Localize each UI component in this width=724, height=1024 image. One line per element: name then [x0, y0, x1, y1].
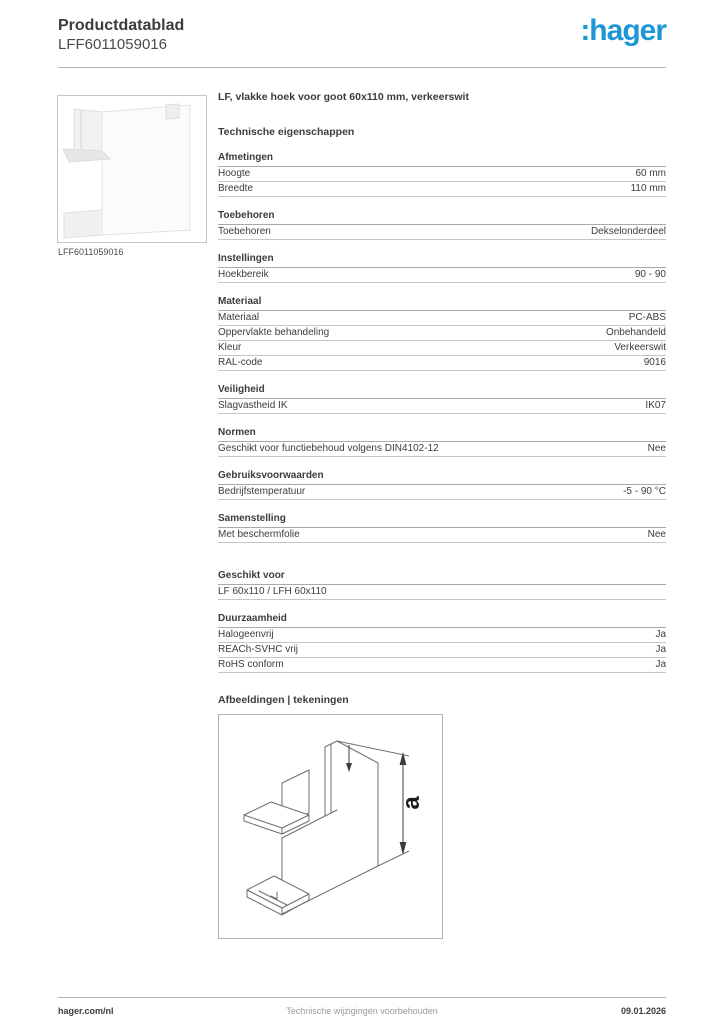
- spec-row: Materiaal PC-ABS: [218, 311, 666, 326]
- drawings-heading: Afbeeldingen | tekeningen: [218, 694, 666, 706]
- spec-row-label: Halogeenvrij: [218, 630, 274, 640]
- main-content: LF, vlakke hoek voor goot 60x110 mm, ver…: [218, 91, 666, 939]
- product-image: [57, 95, 207, 243]
- spec-row: Bedrijfstemperatuur -5 - 90 °C: [218, 485, 666, 500]
- isometric-drawing: a: [219, 715, 442, 938]
- spec-row: Kleur Verkeerswit: [218, 341, 666, 356]
- datasheet-page: Productdatablad LFF6011059016 :hager LFF…: [0, 0, 724, 1024]
- spec-section-title: Gebruiksvoorwaarden: [218, 470, 666, 485]
- header-divider: [58, 67, 666, 68]
- spec-row-value: Nee: [648, 444, 666, 454]
- spec-section: Gebruiksvoorwaarden Bedrijfstemperatuur …: [218, 470, 666, 500]
- spec-row-value: Nee: [648, 530, 666, 540]
- spec-row: Halogeenvrij Ja: [218, 628, 666, 643]
- page-footer: hager.com/nl Technische wijzigingen voor…: [58, 1006, 666, 1016]
- spec-row-label: LF 60x110 / LFH 60x110: [218, 587, 327, 597]
- spec-row-value: 9016: [644, 358, 666, 368]
- spec-row-value: Ja: [655, 660, 666, 670]
- spec-row-value: Ja: [655, 645, 666, 655]
- footer-divider: [58, 997, 666, 998]
- footer-disclaimer: Technische wijzigingen voorbehouden: [58, 1006, 666, 1016]
- spec-section: Duurzaamheid Halogeenvrij Ja REACh-SVHC …: [218, 613, 666, 673]
- spec-row-value: 60 mm: [635, 169, 666, 179]
- spec-row-label: Bedrijfstemperatuur: [218, 487, 305, 497]
- spec-section: Veiligheid Slagvastheid IK IK07: [218, 384, 666, 414]
- spec-row-label: Geschikt voor functiebehoud volgens DIN4…: [218, 444, 439, 454]
- spec-section: Instellingen Hoekbereik 90 - 90: [218, 253, 666, 283]
- spec-section-title: Normen: [218, 427, 666, 442]
- spec-row-label: RAL-code: [218, 358, 262, 368]
- technical-drawing: a: [218, 714, 443, 939]
- spec-row: Slagvastheid IK IK07: [218, 399, 666, 414]
- spec-row: REACh-SVHC vrij Ja: [218, 643, 666, 658]
- spec-row-label: Materiaal: [218, 313, 259, 323]
- spec-row: RoHS conform Ja: [218, 658, 666, 673]
- spec-section: Geschikt voor LF 60x110 / LFH 60x110: [218, 570, 666, 600]
- hager-logo: :hager: [580, 14, 666, 48]
- spec-row-value: IK07: [645, 401, 666, 411]
- spec-row: Oppervlakte behandeling Onbehandeld: [218, 326, 666, 341]
- spec-row: Met beschermfolie Nee: [218, 528, 666, 543]
- spec-row-label: REACh-SVHC vrij: [218, 645, 298, 655]
- spec-section: Materiaal Materiaal PC-ABS Oppervlakte b…: [218, 296, 666, 371]
- spec-row-value: PC-ABS: [629, 313, 666, 323]
- spec-row: LF 60x110 / LFH 60x110: [218, 585, 666, 600]
- spec-section-title: Veiligheid: [218, 384, 666, 399]
- product-title: LF, vlakke hoek voor goot 60x110 mm, ver…: [218, 91, 666, 103]
- spec-row-label: Hoekbereik: [218, 270, 269, 280]
- spec-row: Breedte 110 mm: [218, 182, 666, 197]
- page-header: Productdatablad LFF6011059016: [58, 16, 184, 54]
- product-code: LFF6011059016: [58, 35, 184, 54]
- spec-section-title: Afmetingen: [218, 152, 666, 167]
- spec-section: Normen Geschikt voor functiebehoud volge…: [218, 427, 666, 457]
- spec-row: RAL-code 9016: [218, 356, 666, 371]
- spec-row-label: Slagvastheid IK: [218, 401, 288, 411]
- spec-section-title: Samenstelling: [218, 513, 666, 528]
- product-photo-illustration: [58, 96, 206, 242]
- spec-section-title: Toebehoren: [218, 210, 666, 225]
- document-type-title: Productdatablad: [58, 16, 184, 35]
- spec-row-label: Breedte: [218, 184, 253, 194]
- technical-properties-heading: Technische eigenschappen: [218, 126, 666, 138]
- spec-row-value: 110 mm: [631, 184, 666, 194]
- spec-row-label: Oppervlakte behandeling: [218, 328, 329, 338]
- spec-section-title: Duurzaamheid: [218, 613, 666, 628]
- spec-row-value: 90 - 90: [635, 270, 666, 280]
- spec-row-label: RoHS conform: [218, 660, 284, 670]
- spec-row-value: -5 - 90 °C: [623, 487, 666, 497]
- spec-sections: Afmetingen Hoogte 60 mm Breedte 110 mm T…: [218, 152, 666, 673]
- spec-section-title: Instellingen: [218, 253, 666, 268]
- spec-row-value: Dekselonderdeel: [591, 227, 666, 237]
- spec-row: Toebehoren Dekselonderdeel: [218, 225, 666, 240]
- spec-row-label: Toebehoren: [218, 227, 271, 237]
- spec-row-label: Met beschermfolie: [218, 530, 300, 540]
- spec-row: Hoekbereik 90 - 90: [218, 268, 666, 283]
- spec-section-title: Geschikt voor: [218, 570, 666, 585]
- spec-section: Toebehoren Toebehoren Dekselonderdeel: [218, 210, 666, 240]
- spec-row: Hoogte 60 mm: [218, 167, 666, 182]
- spec-row-value: Verkeerswit: [614, 343, 666, 353]
- spec-row-label: Hoogte: [218, 169, 250, 179]
- dimension-label-a: a: [398, 796, 425, 810]
- spec-section: Samenstelling Met beschermfolie Nee: [218, 513, 666, 543]
- spec-row-label: Kleur: [218, 343, 241, 353]
- spec-section: Afmetingen Hoogte 60 mm Breedte 110 mm: [218, 152, 666, 197]
- spec-section-title: Materiaal: [218, 296, 666, 311]
- spec-row: Geschikt voor functiebehoud volgens DIN4…: [218, 442, 666, 457]
- spec-row-value: Ja: [655, 630, 666, 640]
- spec-row-value: Onbehandeld: [606, 328, 666, 338]
- product-image-caption: LFF6011059016: [58, 247, 123, 257]
